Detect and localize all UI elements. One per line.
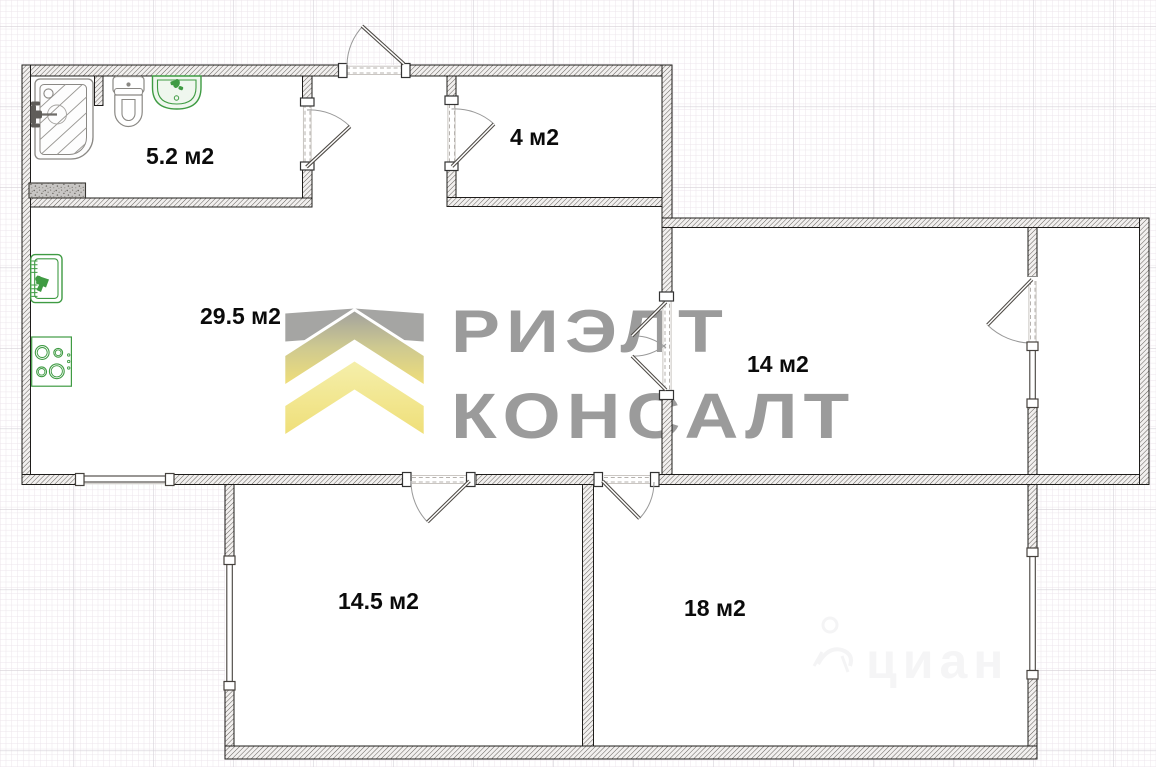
svg-text:14 м2: 14 м2 xyxy=(747,351,809,377)
svg-text:РИЭЛТ: РИЭЛТ xyxy=(451,298,729,365)
svg-text:циан: циан xyxy=(866,633,1009,689)
svg-text:18 м2: 18 м2 xyxy=(684,595,746,621)
svg-text:4 м2: 4 м2 xyxy=(510,124,559,150)
svg-text:КОНСАЛТ: КОНСАЛТ xyxy=(451,380,855,452)
svg-text:29.5 м2: 29.5 м2 xyxy=(200,303,281,329)
svg-text:5.2 м2: 5.2 м2 xyxy=(146,143,214,169)
svg-text:14.5 м2: 14.5 м2 xyxy=(338,588,419,614)
